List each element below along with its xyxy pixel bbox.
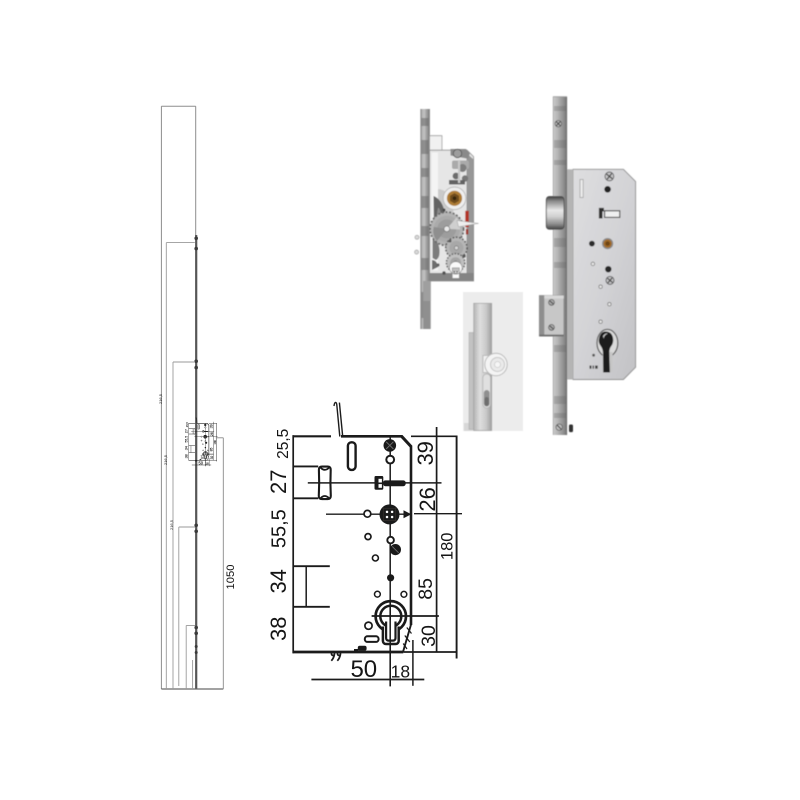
svg-text:18: 18: [391, 662, 410, 682]
svg-text:30: 30: [418, 625, 440, 647]
svg-text:38: 38: [266, 616, 291, 640]
svg-text:216,5: 216,5: [163, 454, 168, 465]
svg-text:26: 26: [415, 487, 440, 511]
svg-text:216,5: 216,5: [158, 393, 163, 404]
svg-text:25,5: 25,5: [275, 429, 292, 459]
svg-text:50: 50: [350, 656, 377, 683]
svg-text:85: 85: [415, 578, 437, 600]
svg-text:1050: 1050: [225, 565, 237, 590]
svg-text:216,5: 216,5: [169, 519, 174, 530]
svg-text:55,5: 55,5: [269, 509, 291, 548]
svg-text:34: 34: [266, 569, 291, 593]
svg-text:180: 180: [439, 533, 457, 561]
svg-text:27: 27: [266, 469, 291, 493]
svg-text:39: 39: [413, 441, 438, 465]
